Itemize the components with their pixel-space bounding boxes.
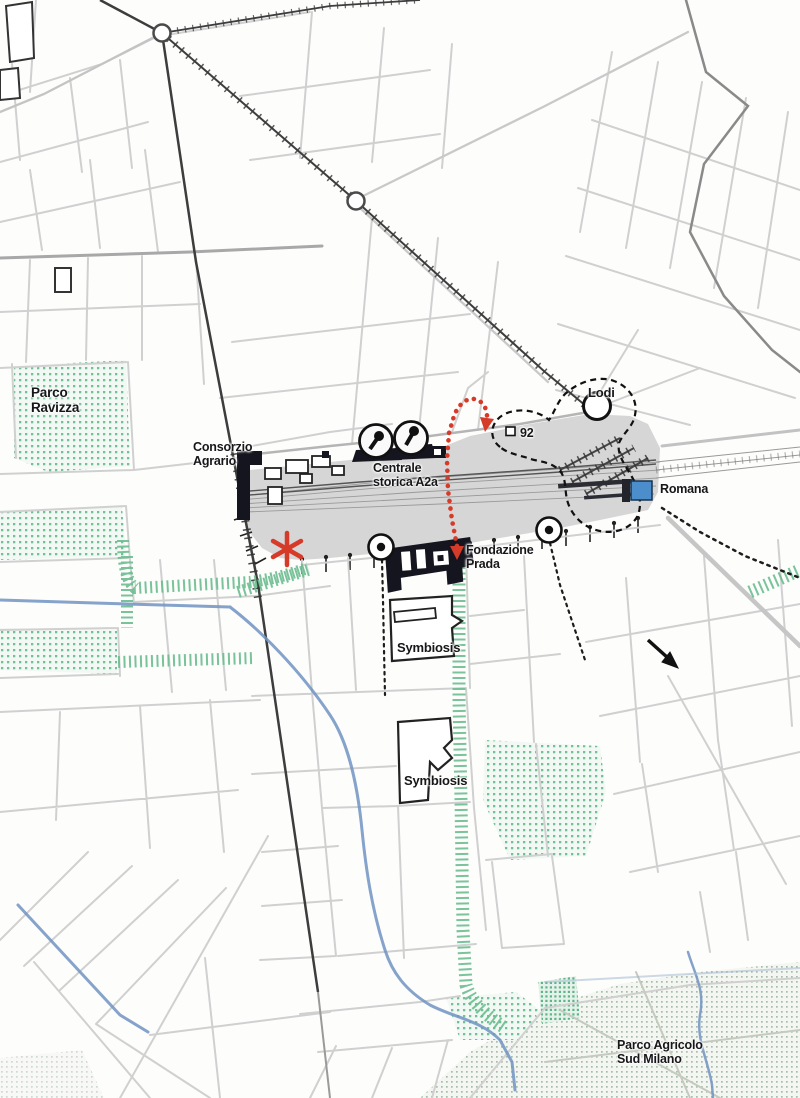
label-romana: Romana: [660, 482, 708, 496]
park-mid-east: [483, 740, 606, 860]
parco-agricolo-strip: [0, 1050, 104, 1098]
dotted-path-east-gate: [550, 543, 586, 663]
label-symbiosis-south: Symbiosis: [404, 774, 467, 788]
label-symbiosis-north: Symbiosis: [397, 641, 460, 655]
a2a-plant: [352, 422, 446, 463]
dotted-path-prada: [382, 560, 385, 695]
label-fondazione-prada: FondazionePrada: [466, 543, 533, 571]
tracks-east: [656, 447, 800, 478]
roundabout-node: [154, 25, 171, 42]
building-outline: [55, 268, 71, 292]
park-west-lower: [0, 628, 117, 674]
label-centrale-a2a: Centralestorica A2a: [373, 461, 438, 489]
label-lodi: Lodi: [588, 386, 615, 400]
label-stop-92: 92: [520, 426, 534, 440]
city-plan-map: ParcoRavizza ConsorzioAgrario Centralest…: [0, 0, 800, 1098]
access-point-icon: [369, 535, 394, 560]
label-parco-ravizza: ParcoRavizza: [31, 385, 79, 415]
stop-92-icon: [506, 427, 515, 436]
map-canvas: [0, 0, 800, 1098]
arrow-icon: [648, 640, 678, 668]
roundabout-node: [348, 193, 365, 210]
green-path-west-lower: [118, 658, 255, 662]
building-outline: [0, 2, 34, 100]
symbiosis-south-building: [398, 718, 452, 803]
green-path-east-edge: [750, 570, 800, 592]
access-point-icon: [537, 518, 562, 543]
romana-station-marker: [622, 479, 652, 502]
canal-west: [0, 600, 230, 607]
label-consorzio-agrario: ConsorzioAgrario: [193, 440, 252, 468]
park-west-upper: [0, 506, 126, 560]
label-parco-agricolo: Parco AgricoloSud Milano: [617, 1038, 703, 1066]
parco-ravizza-area: [14, 360, 130, 472]
